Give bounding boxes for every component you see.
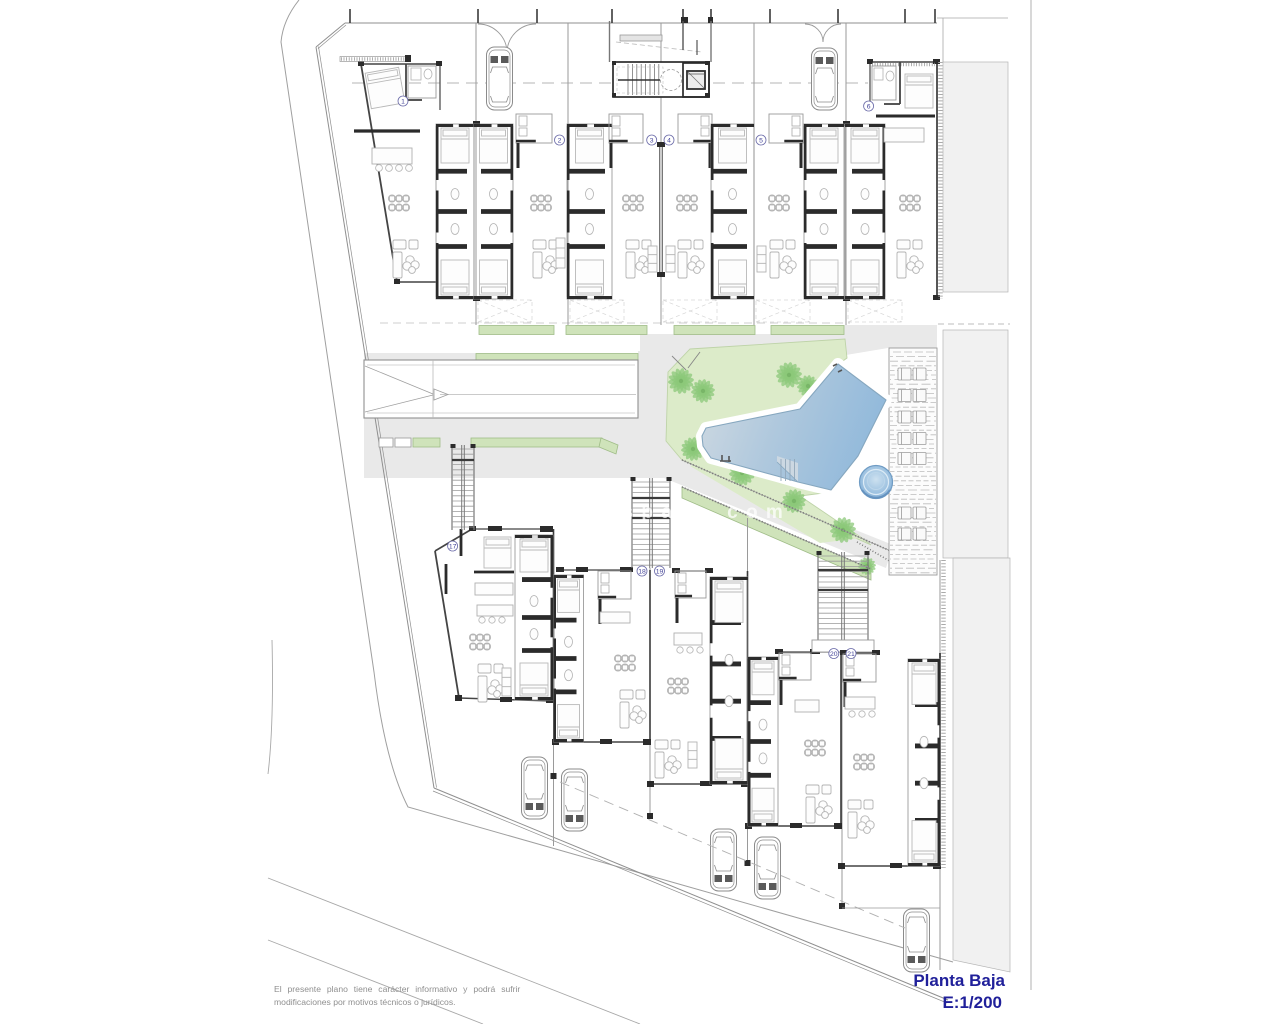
svg-text:modificaciones por motivos téc: modificaciones por motivos técnicos o ju… <box>274 997 456 1007</box>
svg-text:t h i n k s p a i n . c o m: t h i n k s p a i n . c o m <box>536 502 784 523</box>
svg-text:4: 4 <box>667 138 671 145</box>
svg-text:Planta Baja: Planta Baja <box>913 971 1005 990</box>
svg-text:18: 18 <box>638 569 646 576</box>
svg-text:5: 5 <box>759 138 763 145</box>
svg-text:17: 17 <box>449 544 457 551</box>
svg-text:3: 3 <box>650 138 654 145</box>
svg-text:6: 6 <box>867 104 871 111</box>
svg-text:1: 1 <box>401 99 405 106</box>
svg-text:20: 20 <box>830 651 838 658</box>
svg-text:E:1/200: E:1/200 <box>942 993 1002 1012</box>
svg-text:19: 19 <box>656 569 664 576</box>
svg-text:El presente plano tiene caráct: El presente plano tiene carácter informa… <box>274 984 520 994</box>
svg-text:21: 21 <box>847 651 855 658</box>
svg-text:2: 2 <box>558 138 562 145</box>
